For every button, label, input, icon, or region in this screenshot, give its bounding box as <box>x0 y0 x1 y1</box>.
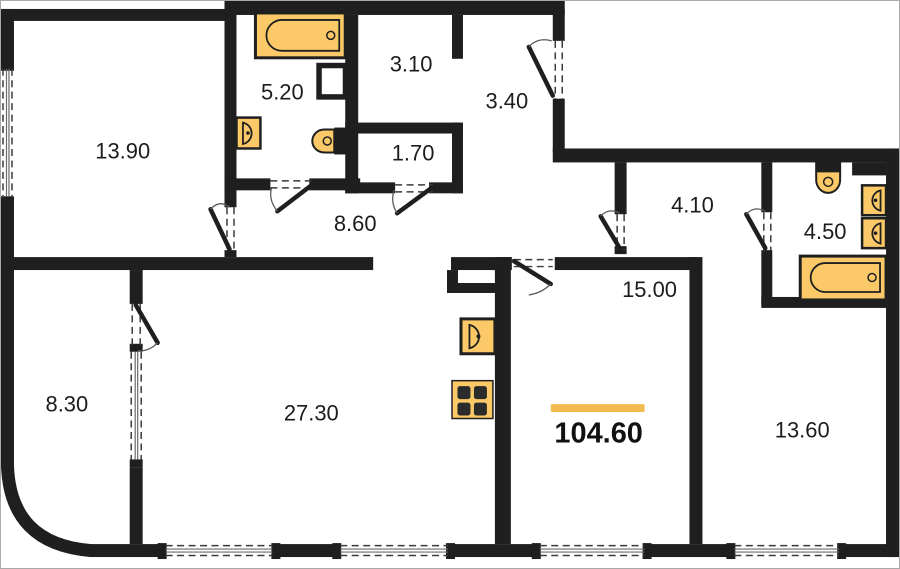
room-area-label: 8.60 <box>334 211 377 236</box>
window-bottom-4 <box>734 546 839 556</box>
floor-plan: 13.90 5.20 3.10 3.40 1.70 8.60 4.10 4.50… <box>0 0 900 569</box>
door-hallway-right <box>601 211 624 250</box>
room-area-label: 1.70 <box>392 140 435 165</box>
rounded-corner-wall <box>7 465 90 550</box>
window-balcony-partition <box>131 352 141 460</box>
door-storage <box>393 185 433 213</box>
window-left-wall <box>3 69 12 197</box>
room-area-label: 4.10 <box>671 192 714 217</box>
room-area-label: 3.40 <box>486 89 529 114</box>
walls <box>1 1 899 559</box>
bathtub-icon <box>800 256 886 300</box>
window-bottom-2 <box>340 546 448 556</box>
toilet-icon <box>312 128 349 155</box>
room-area-label: 13.90 <box>95 138 150 163</box>
room-area-label: 13.60 <box>775 417 830 442</box>
room-area-label: 8.30 <box>46 392 89 417</box>
room-area-label: 27.30 <box>284 401 339 426</box>
door-room-bottom-center <box>514 260 553 295</box>
total-area-accent-bar <box>551 404 645 412</box>
door-bathroom-top <box>270 181 313 211</box>
sink-icon <box>862 218 886 248</box>
floor-plan-drawing: 13.90 5.20 3.10 3.40 1.70 8.60 4.10 4.50… <box>1 1 899 568</box>
room-area-label: 3.10 <box>390 52 433 77</box>
window-bottom-3 <box>540 546 645 556</box>
sink-icon <box>862 185 886 215</box>
room-area-label: 4.50 <box>804 219 847 244</box>
window-bottom-1 <box>166 546 273 556</box>
room-area-label: 15.00 <box>622 277 677 302</box>
room-area-labels: 13.90 5.20 3.10 3.40 1.70 8.60 4.10 4.50… <box>46 52 847 443</box>
entry-door <box>529 40 562 99</box>
kitchen-sink-icon <box>461 319 495 354</box>
room-area-label: 5.20 <box>261 80 304 105</box>
stove-icon <box>452 381 493 419</box>
total-area: 104.60 <box>551 404 645 449</box>
sink-icon <box>236 118 260 149</box>
total-area-label: 104.60 <box>554 417 642 449</box>
door-bathroom-right <box>746 209 770 250</box>
bathtub-icon <box>255 13 345 58</box>
toilet-icon <box>815 155 841 192</box>
door-room-top-left <box>211 204 234 250</box>
